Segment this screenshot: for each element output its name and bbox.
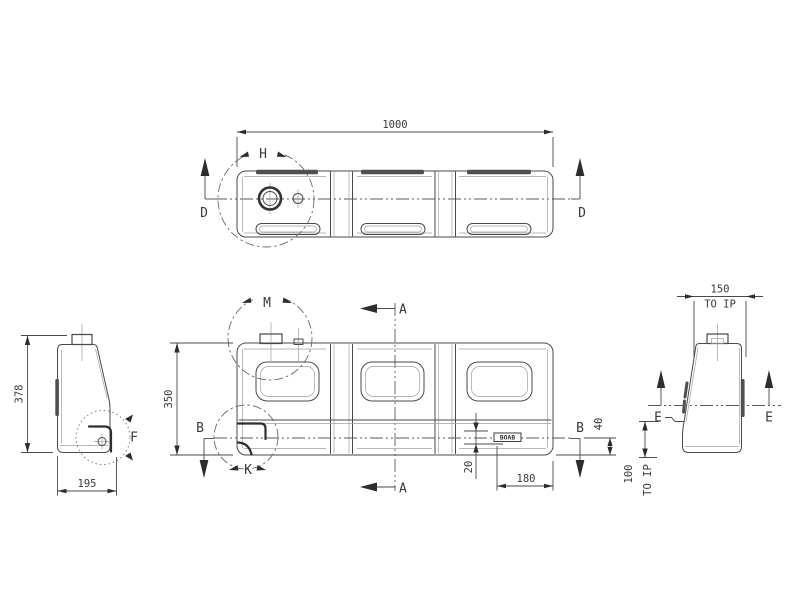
breather-cap-front [294,328,303,361]
dim-label-350: 350 [163,390,175,409]
section-label-a-bottom: A [399,482,407,497]
tank-top-grooves [331,172,456,236]
section-label-d-right: D [578,206,586,221]
section-label-e-left: E [654,411,662,426]
tank-front-ledge [239,420,551,424]
drawing-canvas: 1000 D D [0,0,800,600]
section-marker-b-right: B [570,421,584,478]
dim-label-40: 40 [593,418,605,431]
detail-f-marker: F [76,411,138,465]
dim-label-378: 378 [14,385,26,404]
detail-label-f: F [130,431,138,446]
corner-step-outline [238,424,266,440]
detail-label-m: M [263,296,271,311]
section-arrow-up-icon [201,158,210,176]
tank-drawing-svg: 1000 D D [0,0,800,600]
filler-cap-right [707,324,728,362]
section-marker-e-left: E [654,370,684,426]
section-arrow-left-icon [360,304,377,313]
section-label-b-left: B [196,421,204,436]
section-arrow-down-icon [576,460,585,478]
filler-neck [259,183,281,214]
dim-right-height: 100 TO IP [623,422,659,496]
section-marker-a-top: A [360,303,407,318]
section-marker-a-bottom: A [360,482,407,497]
section-label-e-right: E [765,411,773,426]
detail-arrow-left-icon [240,152,250,158]
dim-label-1000: 1000 [382,119,407,131]
left-side-view: F 378 195 [14,324,139,496]
tank-outline-top [237,171,553,237]
tank-front-recesses [256,362,532,401]
section-label-a-top: A [399,303,407,318]
dim-label-100: 100 [623,465,635,484]
section-arrow-down-icon [200,460,209,478]
right-side-view: E E 150 TO IP 100 TO IP [623,284,781,496]
detail-label-h: H [259,147,267,162]
dim-label-195: 195 [78,478,97,490]
detail-arrow-right-icon [257,465,267,471]
section-marker-b-left: B [196,421,214,478]
section-arrow-left-icon [360,483,377,492]
detail-arrow-right-icon [283,298,293,304]
side-groove-strip [55,379,59,416]
tank-outline-right [683,344,742,453]
top-view: 1000 D D [200,119,586,247]
ip-leader-line [665,418,685,422]
detail-label-k: K [244,463,252,478]
dim-base-offset: 40 [556,418,616,455]
dim-right-width: 150 TO IP [677,284,763,358]
brand-logo-text: BOAB [500,435,515,442]
section-arrow-up-icon [657,370,665,388]
detail-arrow-left-icon [229,465,239,471]
dim-note-to-ip-bottom: TO IP [642,464,654,496]
section-label-d-left: D [200,206,208,221]
dim-label-150: 150 [711,284,730,296]
section-arrow-up-icon [765,370,773,388]
detail-arrow-up-icon [125,415,133,423]
filler-cap-left [72,324,92,361]
tank-front-grooves [331,345,456,454]
dim-logo-inset: 180 [497,446,553,491]
breather-hole [293,189,303,208]
tank-top-edge-strips [256,170,531,174]
detail-k-marker: K [214,405,278,478]
dim-left-width: 195 [58,456,117,496]
side-groove-strips [684,379,745,417]
section-marker-d-right: D [571,158,586,221]
front-view: A A [163,294,616,497]
section-arrow-up-icon [576,158,585,176]
dim-label-180: 180 [517,473,536,485]
detail-arrow-down-icon [125,453,133,461]
tank-top-inner-lines [243,177,548,234]
brand-logo-plate: BOAB [494,433,521,442]
section-marker-e-right: E [765,370,773,426]
detail-m-marker: M [228,294,312,380]
dim-note-to-ip-top: TO IP [704,299,736,311]
filler-cap-front [260,322,282,361]
section-label-b-right: B [576,421,584,436]
corner-step-outline [89,427,111,452]
detail-arrow-left-icon [242,298,252,304]
dim-label-20: 20 [463,461,475,474]
dim-left-height: 378 [14,336,68,453]
section-marker-d-left: D [200,158,214,221]
dim-overall-length: 1000 [237,119,553,167]
